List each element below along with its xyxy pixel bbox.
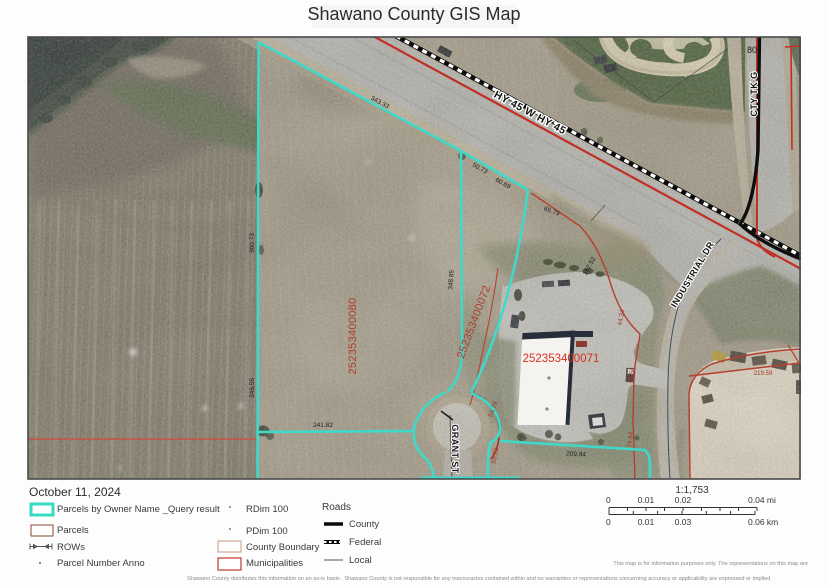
svg-text:0.01: 0.01 [638, 495, 655, 505]
svg-text:209.84: 209.84 [566, 450, 587, 458]
svg-text:219.59: 219.59 [754, 371, 773, 377]
svg-text:PDim 100: PDim 100 [246, 526, 288, 537]
svg-text:Parcels by Owner Name _Query r: Parcels by Owner Name _Query result [57, 504, 220, 515]
svg-text:CTY TK G: CTY TK G [749, 71, 759, 116]
svg-text:0.02: 0.02 [675, 495, 692, 505]
svg-text:252353400080: 252353400080 [347, 297, 359, 374]
svg-text:Shawano County distributes thi: Shawano County distributes this informat… [187, 576, 770, 582]
svg-text:300.73: 300.73 [249, 233, 256, 253]
svg-text:0.01: 0.01 [638, 517, 655, 527]
svg-text:0: 0 [606, 517, 611, 527]
svg-text:0.06 km: 0.06 km [748, 517, 778, 527]
svg-text:0.03: 0.03 [675, 517, 692, 527]
svg-text:Local: Local [349, 555, 372, 566]
svg-text:ROWs: ROWs [57, 542, 85, 553]
svg-text:74.44: 74.44 [626, 431, 634, 448]
svg-text:Parcel Number Anno: Parcel Number Anno [57, 558, 145, 569]
svg-text:0: 0 [606, 495, 611, 505]
svg-text:241.82: 241.82 [313, 422, 333, 429]
svg-text:80: 80 [747, 45, 757, 55]
svg-text:This map is for information pu: This map is for information purposes onl… [613, 561, 808, 567]
svg-text:Roads: Roads [322, 502, 351, 513]
svg-text:346.55: 346.55 [249, 378, 256, 398]
svg-text:Parcels: Parcels [57, 525, 89, 536]
svg-text:County Boundary: County Boundary [246, 542, 320, 553]
svg-text:County: County [349, 519, 379, 530]
svg-text:348.85: 348.85 [447, 269, 455, 290]
svg-text:Municipalities: Municipalities [246, 558, 303, 569]
svg-text:Federal: Federal [349, 537, 381, 548]
svg-text:252353400071: 252353400071 [523, 353, 600, 365]
svg-text:0.04 mi: 0.04 mi [748, 495, 776, 505]
svg-text:GRANT ST: GRANT ST [450, 424, 460, 473]
svg-text:RDim 100: RDim 100 [246, 504, 288, 515]
